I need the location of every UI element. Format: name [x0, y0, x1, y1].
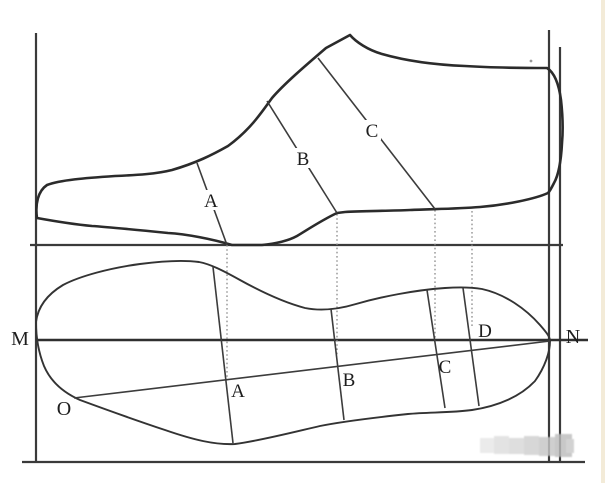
label-c-sole: C: [439, 357, 452, 378]
blurred-watermark: [480, 434, 574, 457]
label-point-n: N: [566, 326, 580, 348]
section-line-c-sole: [427, 290, 445, 408]
diagonal-line-o-n: [74, 341, 550, 398]
label-c-upper: C: [366, 121, 379, 142]
label-point-m: M: [11, 328, 29, 350]
last-profile-outline: [36, 35, 562, 245]
section-line-a-sole: [213, 267, 233, 443]
label-point-o: O: [57, 398, 71, 420]
shoe-last-measurement-diagram: A B C A B C D M N O: [0, 0, 605, 483]
label-d-sole: D: [478, 321, 492, 342]
stray-dot: [530, 60, 533, 63]
sole-plan-outline: [36, 261, 550, 444]
diagram-canvas: A B C A B C D M N O: [0, 0, 605, 483]
label-a-sole: A: [231, 381, 245, 402]
section-line-b-sole: [331, 309, 344, 420]
label-a-upper: A: [204, 191, 218, 212]
label-b-upper: B: [297, 149, 310, 170]
label-b-sole: B: [343, 370, 356, 391]
section-line-d-sole: [463, 288, 479, 406]
edge-strip: [601, 0, 605, 483]
